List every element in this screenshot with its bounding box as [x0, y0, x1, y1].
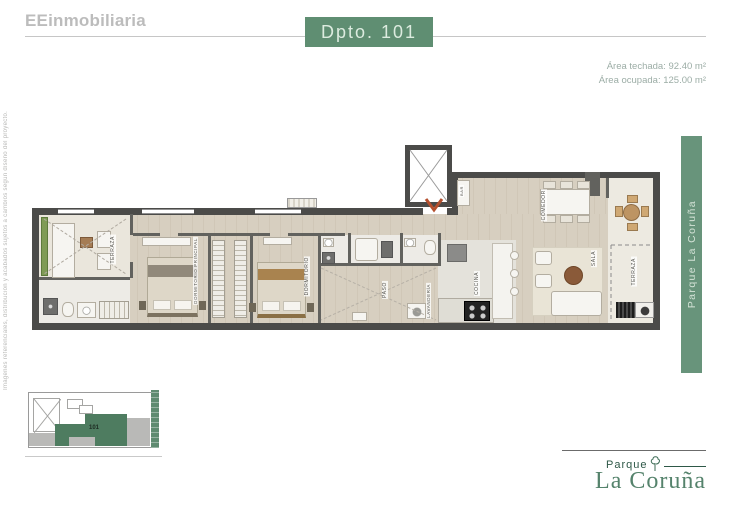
planter: [41, 217, 48, 276]
footer-divider: [562, 450, 706, 451]
room-label-paso: PASO: [382, 281, 388, 299]
bed-blanket: [148, 265, 197, 277]
window-ledge: [287, 198, 317, 208]
wall: [288, 233, 345, 236]
elevator-shaft: [405, 145, 452, 207]
armchair: [535, 274, 552, 288]
room-label-terraza-left: TERRAZA: [110, 235, 116, 265]
stool: [510, 287, 519, 296]
sink: [77, 302, 96, 318]
footer-brand-large: La Coruña: [560, 468, 706, 495]
dining-chair: [577, 181, 590, 189]
room-label-comedor: COMEDOR: [541, 189, 547, 221]
wall: [606, 178, 609, 198]
shower: [43, 298, 58, 315]
bed-blanket: [258, 269, 305, 280]
dining-table: [540, 189, 590, 215]
grill: [616, 302, 654, 318]
sink: [404, 238, 416, 247]
sink: [323, 238, 334, 247]
dining-chair: [543, 181, 556, 189]
stool: [510, 251, 519, 260]
terrace-table: [623, 204, 640, 221]
wall: [318, 263, 441, 266]
bath-cabinet: [381, 241, 393, 258]
nightstand: [307, 303, 314, 312]
grill-grate: [616, 302, 635, 318]
closet-shelves: [99, 301, 129, 319]
keyplan-core-box: [79, 405, 93, 414]
footer-logo-line: [664, 466, 706, 467]
brochure-page: EEinmobiliaria Dpto. 101 Área techada: 9…: [0, 0, 730, 515]
wall: [178, 233, 270, 236]
wall: [318, 233, 321, 323]
wall: [348, 233, 351, 263]
dining-chair: [560, 181, 573, 189]
stove: [464, 301, 490, 321]
terrace-chair: [615, 206, 623, 217]
wall: [130, 262, 133, 278]
room-label-sala: SALA: [591, 250, 597, 267]
lounge-chair: [97, 253, 111, 270]
wall: [133, 233, 160, 236]
wall: [653, 172, 660, 330]
window: [142, 209, 194, 214]
nightstand: [249, 303, 256, 312]
terrace-chair: [627, 223, 638, 231]
wall: [400, 233, 403, 263]
stool: [510, 269, 519, 278]
grill-counter: [635, 302, 654, 318]
toilet: [424, 240, 436, 255]
keyplan-gray-block: [69, 437, 95, 446]
wall: [452, 172, 660, 178]
bed-secondary: [257, 262, 306, 318]
wall: [438, 233, 441, 266]
pillow: [174, 300, 192, 310]
keyplan-gray-block: [29, 433, 55, 446]
bathtub: [355, 238, 378, 261]
floor-bath-strip: [318, 235, 438, 266]
keyplan-green-strip: [151, 390, 159, 448]
refrigerator: [447, 244, 467, 262]
pillow: [262, 301, 280, 311]
pillow: [283, 301, 301, 311]
hall-bench: [352, 312, 367, 321]
room-label-terraza-right: TERRAZA: [631, 257, 637, 287]
terrace-sofa: [52, 223, 75, 278]
sofa: [551, 291, 602, 316]
nightstand: [139, 301, 146, 310]
terrace-chair: [627, 195, 638, 203]
coffee-table: [80, 237, 93, 248]
shower: [322, 252, 335, 264]
dresser: [263, 237, 292, 245]
dresser: [142, 237, 191, 246]
wall: [208, 236, 211, 323]
room-label-lavanderia: LAVANDERÍA: [426, 283, 431, 319]
room-label-dormitorio: DORMITORIO: [304, 256, 310, 296]
bed-principal: [147, 257, 198, 317]
nightstand: [199, 301, 206, 310]
wall: [32, 208, 39, 330]
keyplan-divider: [25, 456, 162, 457]
wall: [32, 323, 660, 330]
window: [255, 209, 301, 214]
washing-machine: [407, 303, 426, 319]
wall: [130, 214, 133, 235]
toilet: [62, 302, 74, 317]
keyplan: [28, 392, 152, 448]
keyplan-unit-101-label: 101: [89, 425, 99, 431]
room-label-bar: BAR: [459, 185, 464, 197]
pillow: [153, 300, 171, 310]
keyplan-gray-block: [126, 418, 150, 446]
closet-shelves: [212, 240, 225, 318]
terrace-chair: [641, 206, 649, 217]
room-label-dormitorio-principal: DORMITORIO PRINCIPAL: [193, 237, 198, 305]
lounge-chair: [97, 231, 111, 248]
round-coffee-table: [564, 266, 583, 285]
dining-chair: [560, 215, 573, 223]
window: [58, 209, 94, 214]
dining-chair: [577, 215, 590, 223]
room-label-cocina: COCINA: [474, 271, 480, 296]
closet-shelves: [234, 240, 247, 318]
armchair: [535, 251, 552, 265]
